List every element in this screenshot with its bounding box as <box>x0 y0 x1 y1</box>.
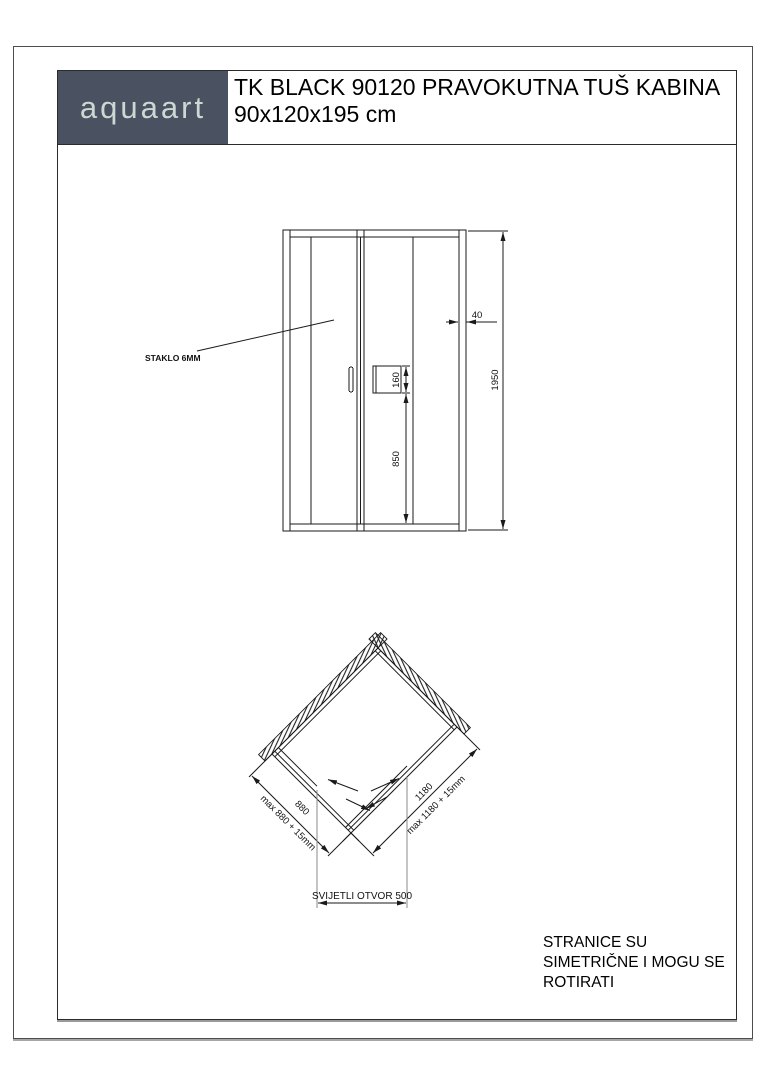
glass-label: STAKLO 6MM <box>145 353 201 363</box>
dim-profile-width-label: 40 <box>472 310 483 321</box>
door-slide-arrows <box>328 779 399 811</box>
glass-leader-line <box>197 320 334 351</box>
dim-side-left-max-label: max 880 + 15mm <box>258 793 318 853</box>
elevation-dimension-labels: 40 1950 160 850 <box>391 310 501 467</box>
dim-opening-label: SVIJETLI OTVOR 500 <box>312 891 412 902</box>
dim-total-height-label: 1950 <box>490 369 501 390</box>
wall-hatch-right <box>369 633 470 734</box>
door-handle <box>349 367 353 392</box>
dim-side-right-label: 1180 <box>413 781 435 803</box>
technical-drawing: STAKLO 6MM 40 1950 160 850 <box>0 0 768 1086</box>
datasheet-page: aquaart TK BLACK 90120 PRAVOKUTNA TUŠ KA… <box>0 0 768 1086</box>
dim-side-left-label: 880 <box>292 799 311 818</box>
dim-handle-height-label: 160 <box>391 372 402 388</box>
wall-hatch-left <box>259 633 387 761</box>
dim-side-right-max-label: max 1180 + 15mm <box>405 774 468 837</box>
dim-handle-floor-label: 850 <box>391 451 402 467</box>
glass-callout: STAKLO 6MM <box>145 320 334 363</box>
front-elevation-drawing <box>283 230 466 531</box>
plan-dimension-labels: 880 max 880 + 15mm 1180 max 1180 + 15mm … <box>258 774 468 902</box>
